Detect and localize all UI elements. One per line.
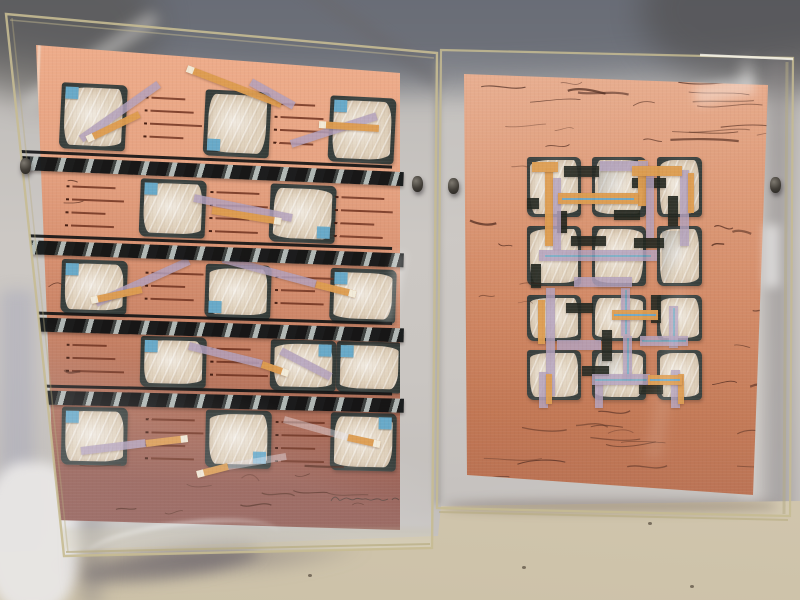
frame-hardware	[0, 0, 800, 600]
frame-clip	[20, 158, 31, 174]
photo-scene: Two abstract mixed-media collage artwork…	[0, 0, 800, 600]
frame-clip	[448, 178, 459, 194]
frame-clip	[412, 176, 423, 192]
frame-clip	[770, 177, 781, 193]
